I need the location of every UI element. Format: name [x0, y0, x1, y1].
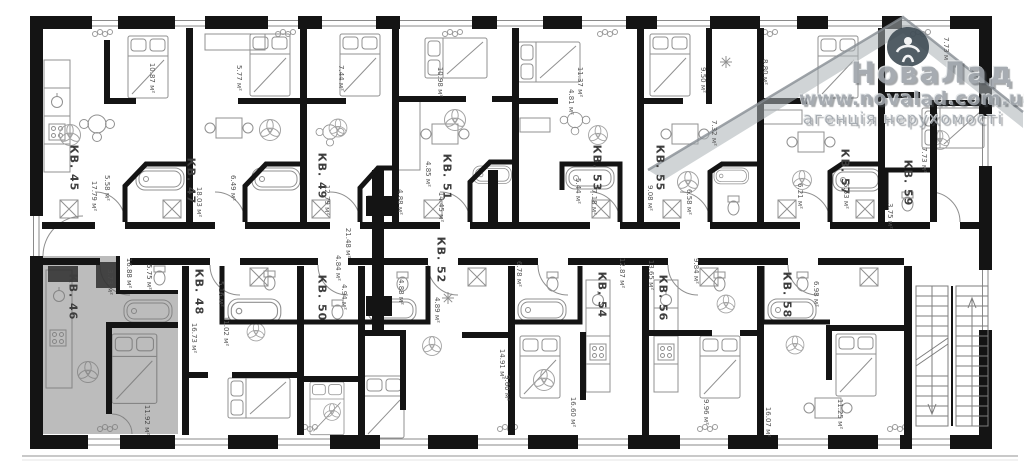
unit-label-59: КВ. 59: [902, 160, 915, 207]
area-label: 16.73 м²: [190, 323, 198, 353]
area-label: 4.94 м²: [340, 284, 348, 310]
area-label: 8.80 м²: [761, 59, 769, 85]
area-label: 16.88 м²: [125, 258, 133, 288]
area-label: 7.32 м²: [710, 120, 718, 146]
area-label: 9.96 м²: [702, 399, 710, 425]
area-label: 3.73 м²: [106, 269, 114, 295]
area-label: 14.45 м²: [437, 192, 445, 222]
unit-label-46: КВ. 46: [67, 274, 80, 321]
area-label: 6.21 м²: [796, 183, 804, 209]
area-label: 7.18 м²: [590, 189, 598, 215]
area-label: 5.16 м²: [217, 281, 225, 307]
area-label: 6.98 м²: [812, 281, 820, 307]
watermark-brand: НоваЛад: [851, 56, 1014, 90]
area-label: 5.75 м²: [145, 264, 153, 290]
area-label: 6.78 м²: [515, 261, 523, 287]
area-label: 11.92 м²: [143, 405, 151, 435]
area-label: 7.44 м²: [337, 65, 345, 91]
area-label: 4.84 м²: [334, 255, 342, 281]
unit-label-55: КВ. 55: [654, 145, 667, 192]
area-label: 12.79 м²: [323, 185, 331, 215]
area-label: 6.58 м²: [685, 189, 693, 215]
area-label: 17.79 м²: [90, 181, 98, 211]
unit-label-45: КВ. 45: [68, 145, 81, 192]
watermark-url: www.novalad.com.ua: [799, 88, 1024, 110]
area-label: 16.60 м²: [569, 397, 577, 427]
area-label: 5.44 м²: [574, 178, 582, 204]
area-label: 9.50 м²: [699, 67, 707, 93]
area-label: 5.58 м²: [103, 175, 111, 201]
unit-label-54: КВ. 54: [596, 272, 609, 319]
area-label: 18.03 м²: [195, 187, 203, 217]
unit-label-56: КВ. 56: [657, 275, 670, 322]
unit-label-53: КВ. 53: [591, 145, 604, 192]
area-label: 10.98 м²: [436, 67, 444, 97]
area-label: 6.49 м²: [229, 175, 237, 201]
area-label: 9.08 м²: [646, 185, 654, 211]
area-label: 16.07 м²: [764, 407, 772, 437]
ground-line: [22, 456, 1018, 460]
area-label: 10.87 м²: [148, 63, 156, 93]
area-label: 4.81 м²: [567, 89, 575, 115]
area-label: 4.89 м²: [433, 297, 441, 323]
floorplan-page: КВ. 45 КВ. 47 КВ. 49 КВ. 51 КВ. 53 КВ. 5…: [0, 0, 1024, 474]
area-label: 4.85 м²: [424, 161, 432, 187]
watermark-tagline: агенція нерухомості: [803, 109, 1004, 128]
area-label: 13.65 м²: [647, 260, 655, 290]
unit-label-48: КВ. 48: [193, 269, 206, 316]
area-label: 7.73 м²: [920, 147, 928, 173]
unit-label-50: КВ. 50: [316, 275, 329, 322]
unit-label-52: КВ. 52: [435, 237, 448, 284]
area-label: 12.87 м²: [618, 258, 626, 288]
area-label: 11.37 м²: [576, 67, 584, 97]
corridor-area-label: 21.48 м²: [344, 228, 352, 258]
unit-label-58: КВ. 58: [781, 272, 794, 319]
area-label: 11.25 м²: [836, 399, 844, 429]
area-label: 11.02 м²: [222, 316, 230, 346]
area-label: 5.53 м²: [842, 183, 850, 209]
staircase: [916, 286, 988, 426]
area-label: 3.75 м²: [886, 203, 894, 229]
area-label: 5.77 м²: [235, 65, 243, 91]
area-label: 9.60 м²: [503, 375, 511, 401]
area-label: 9.84 м²: [692, 258, 700, 284]
area-label: 4.88 м²: [396, 189, 404, 215]
area-label: 4.88 м²: [397, 279, 405, 305]
